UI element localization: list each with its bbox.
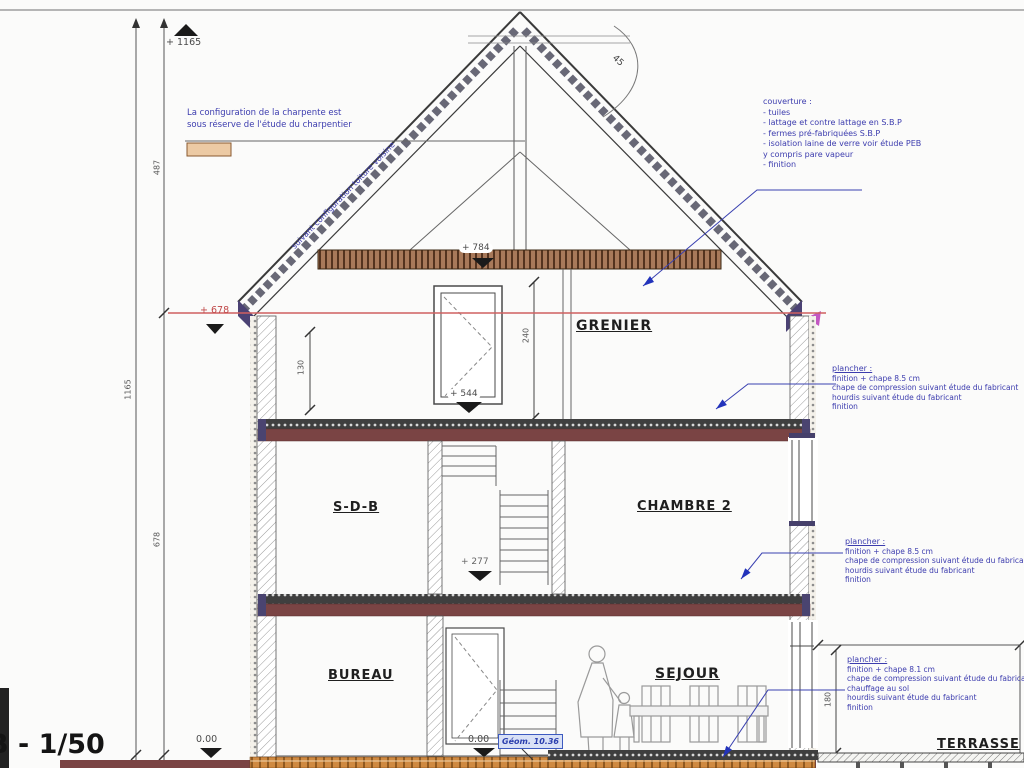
room-label-chambre2: CHAMBRE 2 <box>637 499 732 514</box>
couverture-item: - fermes pré-fabriquées S.B.P <box>763 129 921 140</box>
room-label-bureau: BUREAU <box>328 668 394 683</box>
dim-total-height: 1165 <box>124 373 133 407</box>
plancher-title: plancher : <box>845 537 1024 547</box>
plancher-line: finition <box>847 703 1024 713</box>
dim-terrace-height: 180 <box>824 683 833 717</box>
couverture-item: - lattage et contre lattage en S.B.P <box>763 118 921 129</box>
room-label-sdb: S-D-B <box>333 500 379 515</box>
dim-knee-wall: 130 <box>297 351 306 385</box>
plancher-line: finition + chape 8.5 cm <box>845 547 1024 557</box>
people-furniture <box>578 646 768 753</box>
room-label-terrasse: TERRASSE <box>937 737 1020 752</box>
plancher-line: chape de compression suivant étude du fa… <box>832 383 1018 393</box>
plancher-line: chape de compression suivant étude du fa… <box>847 674 1024 684</box>
dim-roof-height: 487 <box>153 151 162 185</box>
couverture-item: - isolation laine de verre voir étude PE… <box>763 139 921 150</box>
level-first-floor: + 277 <box>461 557 489 567</box>
plancher-line: hourdis suivant étude du fabricant <box>845 566 1024 576</box>
level-eave: + 678 <box>200 305 229 316</box>
charpente-note-line1: La configuration de la charpente est <box>187 107 352 119</box>
plancher-line: hourdis suivant étude du fabricant <box>847 693 1024 703</box>
timber-swatch <box>187 143 231 156</box>
plancher-note-grenier: plancher : finition + chape 8.5 cm chape… <box>832 364 1018 412</box>
couverture-note: couverture : - tuiles - lattage et contr… <box>763 97 921 171</box>
architectural-section-sheet: + 1165 + 784 + 678 + 544 + 277 0.00 0.00… <box>0 0 1024 768</box>
dim-wall-height: 678 <box>153 523 162 557</box>
level-ridge: + 1165 <box>166 37 201 48</box>
plancher-title: plancher : <box>847 655 1024 665</box>
plancher-line: chauffage au sol <box>847 684 1024 694</box>
plancher-line: finition + chape 8.5 cm <box>832 374 1018 384</box>
charpente-note-line2: sous réserve de l'étude du charpentier <box>187 119 352 131</box>
dim-grenier-height: 240 <box>522 319 531 353</box>
plancher-note-etage: plancher : finition + chape 8.5 cm chape… <box>845 537 1024 585</box>
charpente-note: La configuration de la charpente est sou… <box>187 107 352 131</box>
couverture-title: couverture : <box>763 97 921 108</box>
level-attic-slab: + 784 <box>459 243 493 253</box>
couverture-item: y compris pare vapeur <box>763 150 921 161</box>
room-label-sejour: SEJOUR <box>655 666 720 682</box>
geometer-elevation-tag: Géom. 10.36 <box>498 734 563 749</box>
couverture-item: - finition <box>763 160 921 171</box>
plancher-line: chape de compression suivant étude du fa… <box>845 556 1024 566</box>
plancher-line: finition <box>845 575 1024 585</box>
room-label-grenier: GRENIER <box>576 318 652 334</box>
plancher-line: finition <box>832 402 1018 412</box>
level-ground-mid: 0.00 <box>468 734 489 745</box>
level-grenier-floor: + 544 <box>447 389 481 399</box>
couverture-item: - tuiles <box>763 108 921 119</box>
section-scale-label: B - 1/50 <box>0 729 105 760</box>
plancher-line: hourdis suivant étude du fabricant <box>832 393 1018 403</box>
level-ground-left: 0.00 <box>196 734 217 745</box>
plancher-note-rdc: plancher : finition + chape 8.1 cm chape… <box>847 655 1024 712</box>
plancher-title: plancher : <box>832 364 1018 374</box>
plancher-line: finition + chape 8.1 cm <box>847 665 1024 675</box>
